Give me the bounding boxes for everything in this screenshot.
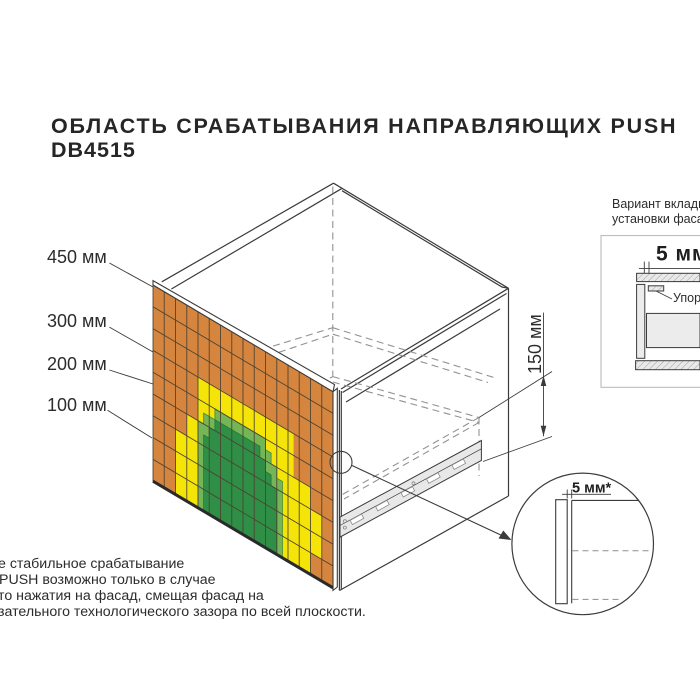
svg-text:300 мм: 300 мм xyxy=(47,311,107,331)
svg-text:установки фасада: установки фасада xyxy=(612,212,700,226)
svg-text:150 мм: 150 мм xyxy=(525,314,545,374)
svg-text:Упор: Упор xyxy=(673,291,700,305)
svg-text:е стабильное срабатывание: е стабильное срабатывание xyxy=(0,556,184,572)
svg-text:DB4515: DB4515 xyxy=(51,138,136,162)
svg-text:то нажатия на фасад, смещая фа: то нажатия на фасад, смещая фасад на xyxy=(0,588,264,604)
svg-text:Вариант вкладной: Вариант вкладной xyxy=(612,197,700,211)
svg-text:PUSH возможно только в случае: PUSH возможно только в случае xyxy=(0,572,216,588)
svg-text:450 мм: 450 мм xyxy=(47,247,107,267)
svg-text:5 мм: 5 мм xyxy=(656,243,700,266)
svg-text:зательного технологического за: зательного технологического зазора по вс… xyxy=(0,604,366,620)
svg-text:100 мм: 100 мм xyxy=(47,395,107,415)
svg-text:ОБЛАСТЬ СРАБАТЫВАНИЯ НАПРАВЛЯЮ: ОБЛАСТЬ СРАБАТЫВАНИЯ НАПРАВЛЯЮЩИХ PUSH xyxy=(51,114,677,138)
svg-text:200 мм: 200 мм xyxy=(47,354,107,374)
